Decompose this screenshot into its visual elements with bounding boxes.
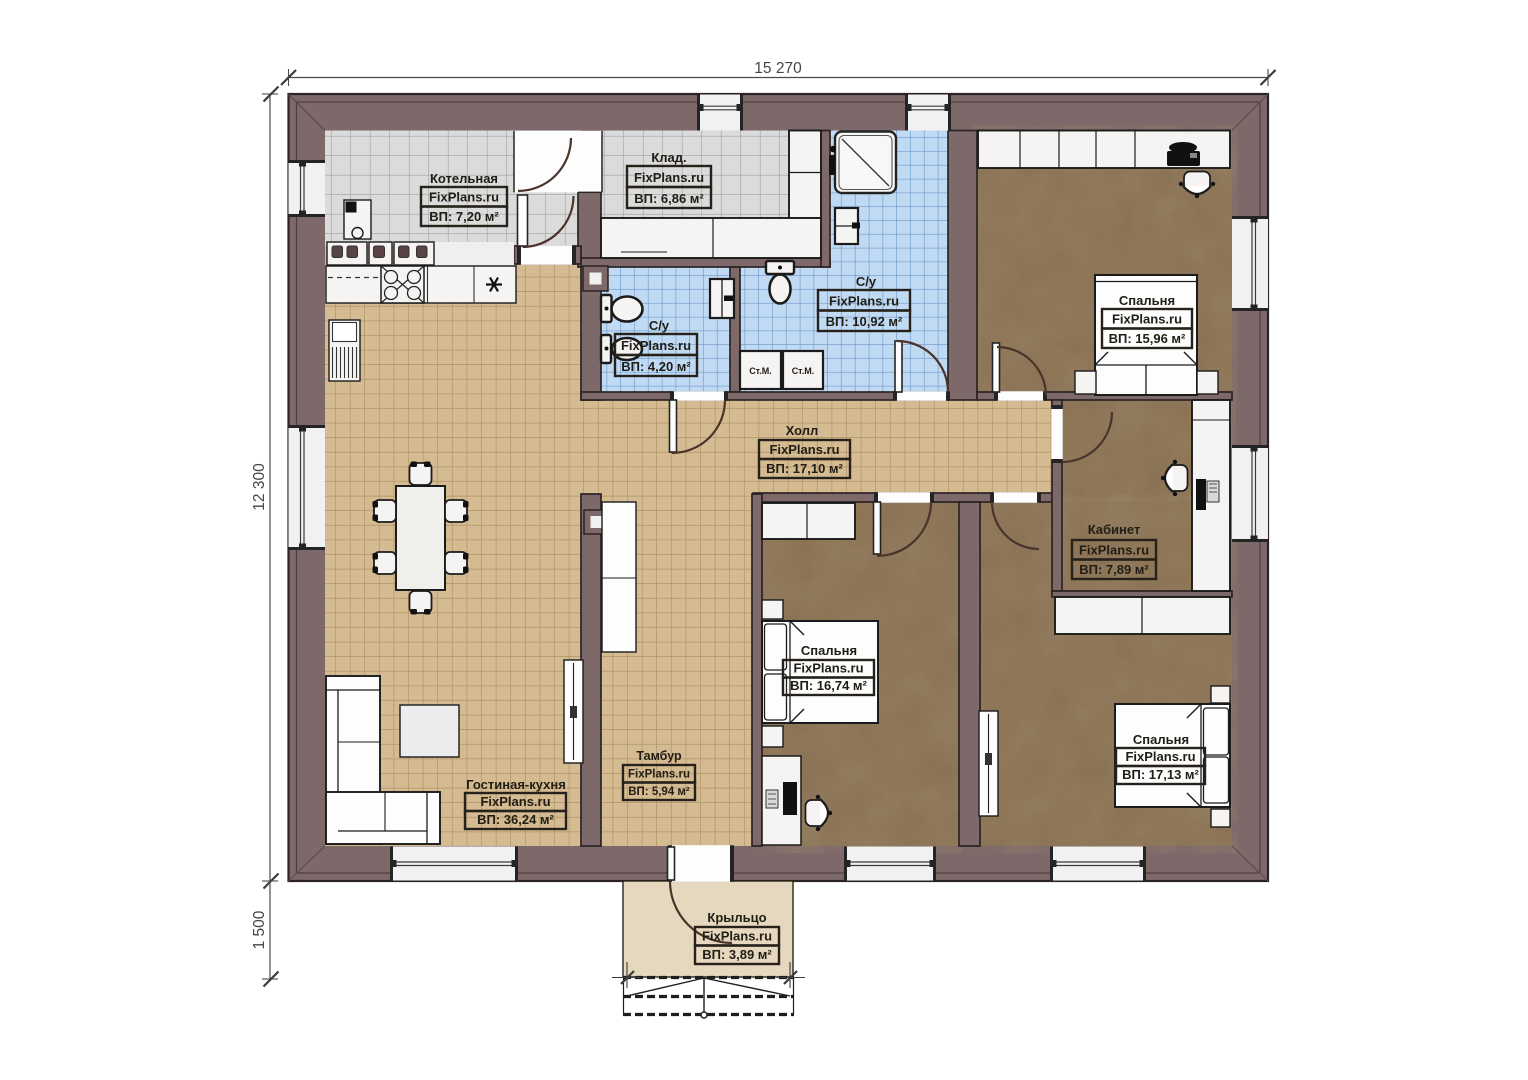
svg-text:FixPlans.ru: FixPlans.ru bbox=[429, 190, 499, 205]
svg-text:ВП: 4,20 м²: ВП: 4,20 м² bbox=[621, 359, 691, 374]
svg-text:Ст.М.: Ст.М. bbox=[749, 366, 772, 376]
svg-text:FixPlans.ru: FixPlans.ru bbox=[1079, 543, 1149, 558]
svg-text:Клад.: Клад. bbox=[651, 150, 686, 165]
svg-text:ВП: 10,92 м²: ВП: 10,92 м² bbox=[826, 314, 903, 329]
svg-text:FixPlans.ru: FixPlans.ru bbox=[628, 769, 690, 781]
svg-text:С/у: С/у bbox=[856, 274, 877, 289]
svg-text:Тамбур: Тамбур bbox=[636, 749, 682, 763]
svg-text:FixPlans.ru: FixPlans.ru bbox=[769, 442, 839, 457]
svg-text:FixPlans.ru: FixPlans.ru bbox=[829, 294, 899, 309]
svg-text:ВП: 5,94 м²: ВП: 5,94 м² bbox=[628, 786, 690, 798]
svg-text:12 300: 12 300 bbox=[251, 463, 268, 511]
svg-text:ВП: 3,89 м²: ВП: 3,89 м² bbox=[702, 947, 772, 962]
svg-text:1 500: 1 500 bbox=[251, 910, 268, 949]
svg-text:ВП: 17,13 м²: ВП: 17,13 м² bbox=[1122, 767, 1199, 782]
svg-text:FixPlans.ru: FixPlans.ru bbox=[1125, 749, 1195, 764]
svg-text:Холл: Холл bbox=[786, 423, 819, 438]
svg-text:FixPlans.ru: FixPlans.ru bbox=[793, 661, 863, 676]
svg-text:FixPlans.ru: FixPlans.ru bbox=[621, 338, 691, 353]
svg-text:15 270: 15 270 bbox=[754, 60, 802, 77]
svg-text:ВП: 17,10 м²: ВП: 17,10 м² bbox=[766, 461, 843, 476]
svg-text:Гостиная-кухня: Гостиная-кухня bbox=[466, 777, 566, 792]
svg-text:FixPlans.ru: FixPlans.ru bbox=[480, 794, 550, 809]
svg-text:ВП: 6,86 м²: ВП: 6,86 м² bbox=[634, 191, 704, 206]
svg-text:FixPlans.ru: FixPlans.ru bbox=[702, 929, 772, 944]
svg-text:Спальня: Спальня bbox=[1119, 293, 1175, 308]
svg-text:ВП: 7,89 м²: ВП: 7,89 м² bbox=[1079, 562, 1149, 577]
svg-text:Ст.М.: Ст.М. bbox=[792, 366, 815, 376]
svg-text:ВП: 36,24 м²: ВП: 36,24 м² bbox=[477, 812, 554, 827]
svg-text:ВП: 7,20 м²: ВП: 7,20 м² bbox=[429, 209, 499, 224]
svg-text:С/у: С/у bbox=[649, 318, 670, 333]
svg-text:Спальня: Спальня bbox=[1133, 732, 1189, 747]
svg-text:FixPlans.ru: FixPlans.ru bbox=[1112, 312, 1182, 327]
svg-text:ВП: 15,96 м²: ВП: 15,96 м² bbox=[1109, 331, 1186, 346]
svg-text:ВП: 16,74 м²: ВП: 16,74 м² bbox=[790, 678, 867, 693]
svg-text:FixPlans.ru: FixPlans.ru bbox=[634, 170, 704, 185]
svg-text:Спальня: Спальня bbox=[801, 643, 857, 658]
svg-text:Котельная: Котельная bbox=[430, 171, 498, 186]
svg-text:Кабинет: Кабинет bbox=[1088, 522, 1141, 537]
svg-text:Крыльцо: Крыльцо bbox=[707, 910, 766, 925]
